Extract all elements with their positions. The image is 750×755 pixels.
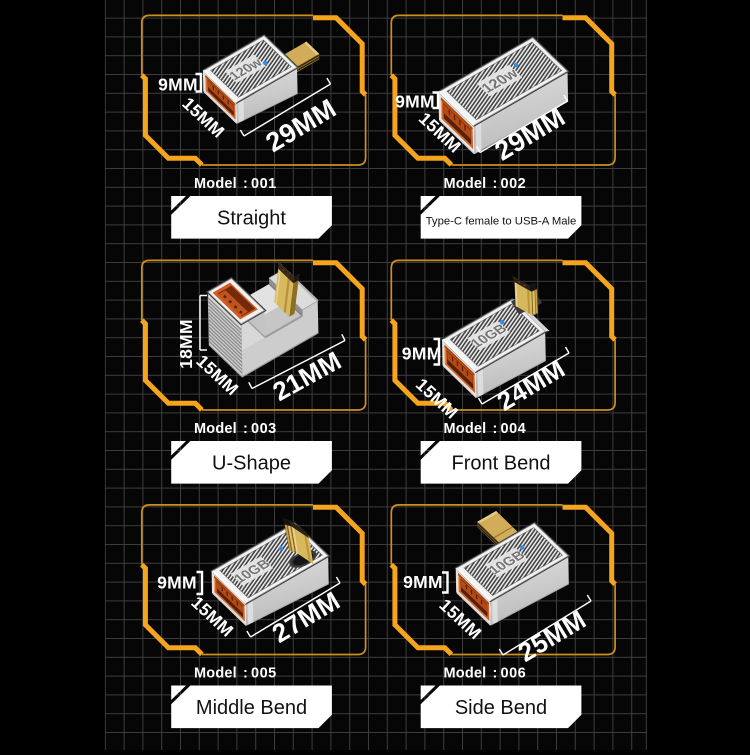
svg-text:001: 001 bbox=[251, 176, 277, 192]
svg-text::: : bbox=[493, 176, 498, 192]
svg-text:Model: Model bbox=[194, 666, 237, 682]
svg-text::: : bbox=[243, 176, 248, 192]
svg-text:Model: Model bbox=[194, 176, 237, 192]
svg-text:Middle Bend: Middle Bend bbox=[196, 697, 307, 719]
svg-text:005: 005 bbox=[251, 666, 277, 682]
svg-text::: : bbox=[493, 421, 498, 437]
svg-text:006: 006 bbox=[501, 666, 527, 682]
svg-text:9MM: 9MM bbox=[158, 75, 198, 95]
svg-text:9MM: 9MM bbox=[403, 572, 443, 592]
svg-text:Front Bend: Front Bend bbox=[452, 453, 551, 475]
svg-text:Straight: Straight bbox=[217, 208, 286, 230]
svg-text:002: 002 bbox=[501, 176, 527, 192]
svg-text:Model: Model bbox=[444, 666, 487, 682]
svg-text:Side Bend: Side Bend bbox=[455, 697, 547, 719]
svg-text:004: 004 bbox=[501, 421, 527, 437]
svg-text:9MM: 9MM bbox=[157, 573, 197, 593]
svg-text:Model: Model bbox=[444, 421, 487, 437]
svg-text:Type-C female to USB-A Male: Type-C female to USB-A Male bbox=[426, 216, 577, 228]
svg-text:18MM: 18MM bbox=[176, 319, 196, 369]
svg-text:003: 003 bbox=[251, 421, 277, 437]
svg-text:Model: Model bbox=[444, 176, 487, 192]
svg-text:U-Shape: U-Shape bbox=[212, 453, 291, 475]
svg-text:9MM: 9MM bbox=[402, 343, 442, 363]
svg-text::: : bbox=[243, 421, 248, 437]
svg-text::: : bbox=[243, 666, 248, 682]
svg-text:Model: Model bbox=[194, 421, 237, 437]
svg-text::: : bbox=[493, 666, 498, 682]
